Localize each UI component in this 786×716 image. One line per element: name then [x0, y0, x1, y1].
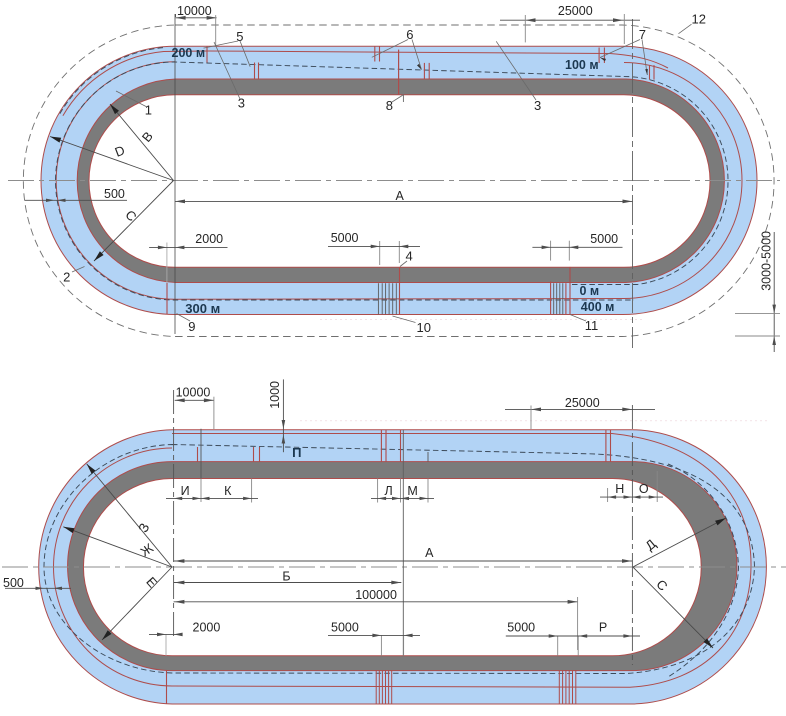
svg-text:10: 10 [417, 320, 431, 335]
svg-text:5000: 5000 [331, 231, 359, 245]
svg-text:И: И [181, 484, 190, 498]
svg-text:5000: 5000 [331, 620, 359, 634]
svg-text:2000: 2000 [195, 232, 223, 246]
svg-text:12: 12 [692, 11, 706, 26]
svg-text:2: 2 [63, 270, 70, 285]
svg-text:25000: 25000 [565, 396, 600, 410]
svg-text:Р: Р [599, 620, 607, 634]
svg-text:3: 3 [534, 98, 541, 113]
svg-text:9: 9 [188, 319, 195, 334]
svg-text:О: О [639, 482, 649, 496]
svg-text:Б: Б [282, 570, 290, 584]
svg-text:5: 5 [236, 29, 243, 44]
svg-text:500: 500 [104, 187, 125, 201]
svg-text:А: А [396, 189, 405, 203]
svg-text:10000: 10000 [177, 4, 212, 18]
svg-text:100000: 100000 [355, 588, 397, 602]
svg-text:100 м: 100 м [565, 58, 599, 72]
svg-text:3: 3 [238, 96, 245, 111]
svg-text:А: А [425, 546, 434, 560]
svg-text:5000: 5000 [507, 620, 535, 634]
svg-text:10000: 10000 [176, 386, 211, 400]
svg-text:Н: Н [615, 482, 624, 496]
svg-text:25000: 25000 [558, 4, 593, 18]
svg-text:1: 1 [145, 102, 152, 117]
svg-text:К: К [224, 484, 232, 498]
svg-text:300 м: 300 м [185, 301, 220, 316]
svg-text:1000: 1000 [268, 381, 282, 409]
svg-text:11: 11 [585, 318, 599, 333]
svg-text:2000: 2000 [193, 620, 221, 634]
svg-text:П: П [292, 445, 301, 460]
svg-text:0 м: 0 м [580, 284, 600, 298]
svg-text:500: 500 [3, 576, 24, 590]
svg-text:3000-5000: 3000-5000 [760, 231, 774, 291]
svg-text:5000: 5000 [590, 232, 618, 246]
svg-text:Л: Л [385, 484, 393, 498]
svg-text:400 м: 400 м [581, 300, 615, 314]
svg-text:200 м: 200 м [172, 46, 206, 60]
svg-text:8: 8 [386, 98, 393, 113]
svg-text:М: М [407, 484, 417, 498]
